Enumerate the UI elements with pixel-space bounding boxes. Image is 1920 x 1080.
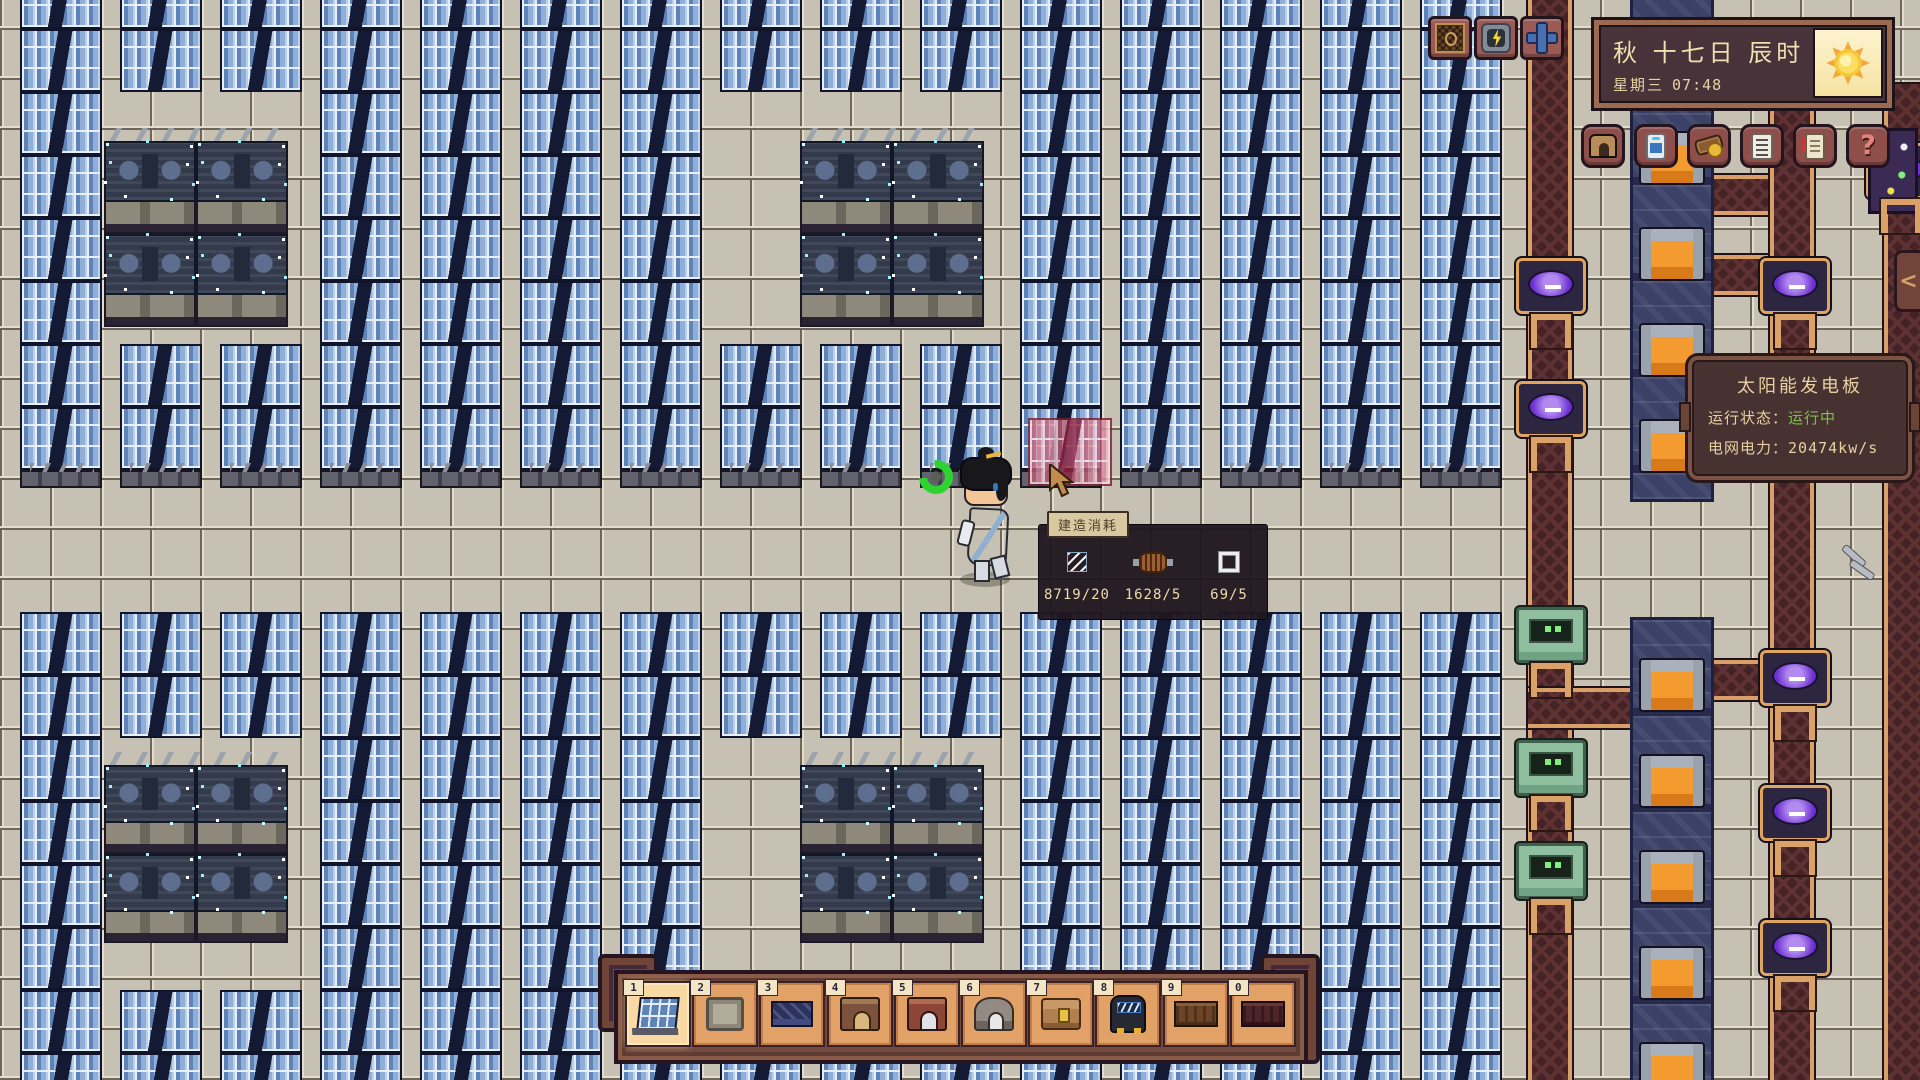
cost-item: 1628/5 <box>1115 549 1191 603</box>
solar-panel[interactable] <box>120 612 202 675</box>
solar-panel[interactable] <box>520 92 602 155</box>
solar-panel[interactable] <box>620 281 702 344</box>
electric-spark <box>106 767 109 770</box>
game-weekday: 星期三 <box>1613 76 1664 94</box>
solar-panel[interactable] <box>1320 612 1402 675</box>
solar-panel[interactable] <box>1420 738 1502 801</box>
solar-panel[interactable] <box>1020 29 1102 92</box>
slot-number: 1 <box>623 979 644 996</box>
solar-panel[interactable] <box>420 155 502 218</box>
solar-panel[interactable] <box>620 0 702 29</box>
solar-panel[interactable] <box>1420 864 1502 927</box>
solar-panel[interactable] <box>1420 92 1502 155</box>
transformer-unit[interactable] <box>800 854 892 943</box>
solar-panel[interactable] <box>620 218 702 281</box>
slot-number: 3 <box>757 979 778 996</box>
sorter-machine[interactable] <box>1516 607 1586 663</box>
solar-panel[interactable] <box>620 407 702 470</box>
pump-machine[interactable] <box>1639 658 1705 712</box>
solar-panel[interactable] <box>520 990 602 1053</box>
game-time: 07:48 <box>1672 76 1722 94</box>
cost-item-icon-wrap <box>1067 549 1087 575</box>
solar-panel[interactable] <box>20 0 102 29</box>
solar-panel[interactable] <box>1120 675 1202 738</box>
hotbar-slot-2[interactable]: 2 <box>694 983 756 1045</box>
solar-panel-base <box>1220 470 1302 488</box>
solar-panel[interactable] <box>120 990 202 1053</box>
solar-panel[interactable] <box>20 92 102 155</box>
transformer-base <box>104 202 196 234</box>
menu-button-list[interactable] <box>1740 124 1784 168</box>
solar-panel[interactable] <box>220 0 302 29</box>
tooltip-title: 太阳能发电板 <box>1692 372 1908 398</box>
solar-panel[interactable] <box>520 0 602 29</box>
solar-panel[interactable] <box>820 29 902 92</box>
solar-panel[interactable] <box>20 1053 102 1080</box>
hotbar-slot-9[interactable]: 9 <box>1165 983 1227 1045</box>
solar-panel[interactable] <box>1220 344 1302 407</box>
solar-panel[interactable] <box>220 344 302 407</box>
collapse-arrow-icon: < <box>1899 269 1917 294</box>
solar-panel[interactable] <box>520 864 602 927</box>
sorter-machine[interactable] <box>1516 843 1586 899</box>
solar-panel[interactable] <box>1220 864 1302 927</box>
solar-panel[interactable] <box>520 29 602 92</box>
solar-panel[interactable] <box>1020 281 1102 344</box>
solar-panel[interactable] <box>1320 864 1402 927</box>
status-value: 运行中 <box>1788 409 1836 427</box>
solar-panel[interactable] <box>120 675 202 738</box>
home-icon <box>1589 134 1617 158</box>
solar-panel[interactable] <box>20 29 102 92</box>
transformer-unit[interactable] <box>196 854 288 943</box>
electric-spark <box>106 143 109 146</box>
filter-machine[interactable] <box>1760 650 1830 706</box>
power-icon <box>1481 23 1511 53</box>
menu-button-device[interactable] <box>1634 124 1678 168</box>
electric-spark <box>802 143 805 146</box>
solar-panel[interactable] <box>520 281 602 344</box>
solar-panel[interactable] <box>20 344 102 407</box>
solar-panel[interactable] <box>1120 281 1202 344</box>
solar-panel[interactable] <box>420 281 502 344</box>
filter-machine[interactable] <box>1760 920 1830 976</box>
solar-panel[interactable] <box>1420 612 1502 675</box>
transformer-base <box>800 202 892 234</box>
solar-panel[interactable] <box>520 155 602 218</box>
solar-panel[interactable] <box>1020 864 1102 927</box>
mouse-cursor <box>1048 464 1078 500</box>
solar-panel[interactable] <box>220 675 302 738</box>
solar-panel[interactable] <box>720 29 802 92</box>
transformer-base <box>800 912 892 943</box>
transformer-base <box>892 202 984 234</box>
solar-panel[interactable] <box>820 407 902 470</box>
player-leg1 <box>974 560 990 582</box>
transformer-unit[interactable] <box>892 765 984 854</box>
solar-panel[interactable] <box>720 675 802 738</box>
solar-panel[interactable] <box>20 281 102 344</box>
solar-panel[interactable] <box>1220 0 1302 29</box>
belt-brown-icon <box>1174 1001 1218 1027</box>
solar-panel[interactable] <box>20 675 102 738</box>
solar-panel[interactable] <box>920 675 1002 738</box>
transformer-unit[interactable] <box>800 765 892 854</box>
belt-dock-frame <box>1775 841 1815 875</box>
game-viewport: 秋 十七日 辰时 星期三07:48 <box>0 0 1920 1080</box>
belt-dock-frame <box>1775 976 1815 1010</box>
solar-panel[interactable] <box>1320 218 1402 281</box>
solar-panel[interactable] <box>20 927 102 990</box>
solar-panel[interactable] <box>320 612 402 675</box>
solar-panel[interactable] <box>20 864 102 927</box>
belt-dock-frame <box>1531 899 1571 933</box>
transformer-cluster[interactable] <box>104 141 288 327</box>
solar-panel[interactable] <box>1320 281 1402 344</box>
solar-panel[interactable] <box>920 29 1002 92</box>
solar-panel[interactable] <box>1320 407 1402 470</box>
solar-panel-base <box>1420 470 1502 488</box>
solar-panel[interactable] <box>1020 218 1102 281</box>
solar-panel[interactable] <box>1320 29 1402 92</box>
electric-spark <box>802 236 805 239</box>
pump-machine[interactable] <box>1639 946 1705 1000</box>
solar-panel[interactable] <box>220 990 302 1053</box>
player-character[interactable] <box>952 452 1018 592</box>
solar-panel[interactable] <box>1420 344 1502 407</box>
menu-button-quest[interactable] <box>1793 124 1837 168</box>
belt-dock-frame <box>1775 706 1815 740</box>
cost-item-icon-wrap <box>1219 549 1239 575</box>
solar-panel[interactable] <box>320 675 402 738</box>
solar-panel[interactable] <box>1420 407 1502 470</box>
build-cost-title: 建造消耗 <box>1047 511 1129 538</box>
cost-item-count: 8719/20 <box>1044 587 1110 603</box>
solar-panel[interactable] <box>1120 864 1202 927</box>
solar-panel[interactable] <box>1020 344 1102 407</box>
solar-panel[interactable] <box>1020 92 1102 155</box>
solar-panel[interactable] <box>420 0 502 29</box>
solar-panel[interactable] <box>1320 0 1402 29</box>
solar-panel[interactable] <box>20 407 102 470</box>
transformer-unit[interactable] <box>800 234 892 327</box>
solar-panel[interactable] <box>320 281 402 344</box>
solar-panel[interactable] <box>920 612 1002 675</box>
solar-panel[interactable] <box>520 407 602 470</box>
map-button-hatch[interactable] <box>1428 16 1472 60</box>
solar-panel[interactable] <box>620 738 702 801</box>
solar-panel[interactable] <box>620 155 702 218</box>
hotbar-slot-0[interactable]: 0 <box>1232 983 1294 1045</box>
solar-panel[interactable] <box>1420 927 1502 990</box>
solar-panel-base <box>20 470 102 488</box>
solar-panel[interactable] <box>220 1053 302 1080</box>
transformer-unit[interactable] <box>104 854 196 943</box>
solar-panel[interactable] <box>720 0 802 29</box>
solar-panel[interactable] <box>520 675 602 738</box>
glass-icon <box>1067 552 1087 572</box>
game-world <box>0 0 1920 1080</box>
transformer-unit[interactable] <box>196 234 288 327</box>
solar-panel[interactable] <box>1420 218 1502 281</box>
solar-panel[interactable] <box>320 0 402 29</box>
solar-panel[interactable] <box>420 927 502 990</box>
solar-panel[interactable] <box>320 407 402 470</box>
solar-panel[interactable] <box>1120 29 1202 92</box>
solar-panel[interactable] <box>620 92 702 155</box>
solar-panel[interactable] <box>320 1053 402 1080</box>
clock-text: 秋 十七日 辰时 星期三07:48 <box>1599 25 1813 103</box>
electric-spark <box>894 856 897 859</box>
solar-panel[interactable] <box>320 864 402 927</box>
transformer-cluster[interactable] <box>104 765 288 943</box>
solar-panel[interactable] <box>1220 281 1302 344</box>
solar-panel[interactable] <box>1420 990 1502 1053</box>
solar-panel[interactable] <box>420 612 502 675</box>
pump-machine[interactable] <box>1639 754 1705 808</box>
solar-panel[interactable] <box>420 92 502 155</box>
filter-machine[interactable] <box>1516 258 1586 314</box>
solar-panel[interactable] <box>120 1053 202 1080</box>
solar-panel[interactable] <box>720 612 802 675</box>
transformer-unit[interactable] <box>104 234 196 327</box>
solar-panel[interactable] <box>920 0 1002 29</box>
solar-panel[interactable] <box>720 407 802 470</box>
electric-spark <box>198 143 201 146</box>
transformer-unit[interactable] <box>892 234 984 327</box>
hotbar-slot-7[interactable]: 7 <box>1030 983 1092 1045</box>
solar-panel[interactable] <box>420 344 502 407</box>
solar-panel[interactable] <box>320 927 402 990</box>
solar-panel[interactable] <box>620 864 702 927</box>
transformer-unit[interactable] <box>196 765 288 854</box>
device-icon <box>1646 133 1666 160</box>
conveyor-belt[interactable] <box>1884 84 1920 1080</box>
solar-panel-base <box>1120 470 1202 488</box>
belt-dock-frame <box>1531 314 1571 348</box>
solar-panel[interactable] <box>320 738 402 801</box>
solar-panel[interactable] <box>1320 92 1402 155</box>
solar-panel[interactable] <box>420 675 502 738</box>
solar-panel[interactable] <box>720 344 802 407</box>
solar-panel[interactable] <box>1220 675 1302 738</box>
solar-panel[interactable] <box>120 29 202 92</box>
transformer-cluster[interactable] <box>800 141 984 327</box>
solar-panel[interactable] <box>320 344 402 407</box>
solar-panel[interactable] <box>520 801 602 864</box>
solar-panel[interactable] <box>1420 801 1502 864</box>
solar-panel[interactable] <box>420 738 502 801</box>
hotbar-slot-4[interactable]: 4 <box>829 983 891 1045</box>
solar-panel[interactable] <box>1120 801 1202 864</box>
belt-dark-icon <box>1241 1001 1285 1027</box>
furnace-icon <box>840 997 880 1031</box>
solar-panel[interactable] <box>120 407 202 470</box>
hotbar-slot-6[interactable]: 6 <box>963 983 1025 1045</box>
transformer-unit[interactable] <box>196 141 288 234</box>
transformer-body <box>892 854 984 912</box>
electric-spark <box>198 856 201 859</box>
solar-panel[interactable] <box>1220 612 1302 675</box>
hotbar-slot-8[interactable]: 8 <box>1097 983 1159 1045</box>
solar-panel[interactable] <box>1120 92 1202 155</box>
solar-panel[interactable] <box>1420 1053 1502 1080</box>
solar-panel[interactable] <box>120 344 202 407</box>
solar-panel[interactable] <box>620 675 702 738</box>
solar-panel[interactable] <box>420 1053 502 1080</box>
hotbar-slot-1[interactable]: 1 <box>627 983 689 1045</box>
solar-panel[interactable] <box>320 29 402 92</box>
build-cost-tooltip: 建造消耗 8719/201628/569/5 <box>1038 524 1268 620</box>
slot-number: 0 <box>1228 979 1249 996</box>
hatch-icon <box>1435 23 1465 53</box>
solar-panel[interactable] <box>1020 612 1102 675</box>
solar-panel[interactable] <box>320 155 402 218</box>
transformer-body <box>196 141 288 202</box>
solar-panel[interactable] <box>820 0 902 29</box>
solar-panel[interactable] <box>620 344 702 407</box>
solar-panel[interactable] <box>1120 0 1202 29</box>
solar-panel[interactable] <box>420 218 502 281</box>
solar-panel[interactable] <box>420 801 502 864</box>
solar-panel[interactable] <box>420 990 502 1053</box>
solar-panel[interactable] <box>220 612 302 675</box>
menu-button-resources[interactable] <box>1687 124 1731 168</box>
transformer-unit[interactable] <box>892 854 984 943</box>
conveyor-belt[interactable] <box>1712 175 1768 215</box>
solar-panel[interactable] <box>520 927 602 990</box>
solar-panel[interactable] <box>320 801 402 864</box>
solar-panel-base <box>620 470 702 488</box>
solar-panel[interactable] <box>1220 407 1302 470</box>
solar-panel[interactable] <box>520 1053 602 1080</box>
solar-panel[interactable] <box>820 675 902 738</box>
pump-machine[interactable] <box>1639 1042 1705 1080</box>
electric-spark <box>894 767 897 770</box>
solar-panel[interactable] <box>1120 218 1202 281</box>
menu-button-home[interactable] <box>1581 124 1625 168</box>
electric-spark <box>894 236 897 239</box>
transformer-unit[interactable] <box>104 765 196 854</box>
slot-number: 4 <box>825 979 846 996</box>
solar-panel[interactable] <box>1020 801 1102 864</box>
solar-panel[interactable] <box>1320 155 1402 218</box>
filter-machine[interactable] <box>1760 258 1830 314</box>
solar-panel[interactable] <box>1020 675 1102 738</box>
solar-panel[interactable] <box>20 801 102 864</box>
transformer-base <box>800 823 892 854</box>
solar-panel[interactable] <box>20 612 102 675</box>
solar-panel[interactable] <box>320 92 402 155</box>
pump-machine[interactable] <box>1639 227 1705 281</box>
solar-panel[interactable] <box>1320 675 1402 738</box>
solar-panel[interactable] <box>1420 281 1502 344</box>
solar-panel[interactable] <box>1020 0 1102 29</box>
solar-panel[interactable] <box>1320 927 1402 990</box>
solar-panel[interactable] <box>1220 218 1302 281</box>
transformer-unit[interactable] <box>892 141 984 234</box>
solar-panel[interactable] <box>220 29 302 92</box>
solar-panel[interactable] <box>20 218 102 281</box>
solar-panel[interactable] <box>1420 675 1502 738</box>
solar-panel[interactable] <box>420 29 502 92</box>
hotbar-slot-5[interactable]: 5 <box>896 983 958 1045</box>
solar-panel[interactable] <box>1020 738 1102 801</box>
solar-panel[interactable] <box>1120 738 1202 801</box>
pipe-valve-icon <box>1526 22 1558 54</box>
solar-panel[interactable] <box>1220 29 1302 92</box>
solar-panel[interactable] <box>520 218 602 281</box>
solar-panel[interactable] <box>1120 407 1202 470</box>
solar-panel[interactable] <box>1320 738 1402 801</box>
clock-panel: 秋 十七日 辰时 星期三07:48 <box>1594 20 1892 108</box>
transformer-body <box>104 141 196 202</box>
solar-panel[interactable] <box>520 344 602 407</box>
solar-panel[interactable] <box>920 344 1002 407</box>
collapse-panel-tab[interactable]: < <box>1894 250 1920 312</box>
transformer-base <box>196 912 288 943</box>
solar-panel[interactable] <box>220 407 302 470</box>
solar-panel[interactable] <box>820 612 902 675</box>
filter-machine[interactable] <box>1516 381 1586 437</box>
solar-panel[interactable] <box>520 612 602 675</box>
solar-panel[interactable] <box>1220 801 1302 864</box>
solar-panel[interactable] <box>1320 344 1402 407</box>
solar-panel[interactable] <box>320 218 402 281</box>
player-hair <box>960 457 1012 491</box>
pump-machine[interactable] <box>1639 850 1705 904</box>
solar-panel[interactable] <box>820 344 902 407</box>
transformer-body <box>104 234 196 295</box>
solar-panel[interactable] <box>620 612 702 675</box>
solar-panel[interactable] <box>1420 155 1502 218</box>
transformer-body <box>892 765 984 823</box>
solar-panel[interactable] <box>420 407 502 470</box>
solar-panel[interactable] <box>1120 155 1202 218</box>
hotbar-slot-3[interactable]: 3 <box>761 983 823 1045</box>
transformer-unit[interactable] <box>800 141 892 234</box>
solar-panel[interactable] <box>1320 990 1402 1053</box>
map-button-pipe-valve[interactable] <box>1520 16 1564 60</box>
solar-panel[interactable] <box>620 29 702 92</box>
slot-number: 7 <box>1026 979 1047 996</box>
solar-panel[interactable] <box>20 155 102 218</box>
transformer-cluster[interactable] <box>800 765 984 943</box>
transformer-base <box>104 823 196 854</box>
solar-panel[interactable] <box>620 801 702 864</box>
solar-panel[interactable] <box>1120 344 1202 407</box>
solar-panel[interactable] <box>1220 155 1302 218</box>
solar-panel[interactable] <box>1120 612 1202 675</box>
solar-panel[interactable] <box>1320 801 1402 864</box>
sorter-machine[interactable] <box>1516 740 1586 796</box>
solar-panel[interactable] <box>1320 1053 1402 1080</box>
solar-panel[interactable] <box>420 864 502 927</box>
solar-panel[interactable] <box>1220 92 1302 155</box>
map-button-power[interactable] <box>1474 16 1518 60</box>
solar-panel[interactable] <box>520 738 602 801</box>
solar-panel[interactable] <box>320 990 402 1053</box>
filter-machine[interactable] <box>1760 785 1830 841</box>
slot-number: 6 <box>959 979 980 996</box>
solar-panel[interactable] <box>20 990 102 1053</box>
transformer-unit[interactable] <box>104 141 196 234</box>
solar-panel[interactable] <box>120 0 202 29</box>
solar-panel[interactable] <box>1020 155 1102 218</box>
solar-panel[interactable] <box>1220 738 1302 801</box>
solar-panel[interactable] <box>20 738 102 801</box>
menu-button-help[interactable]: ? <box>1846 124 1890 168</box>
